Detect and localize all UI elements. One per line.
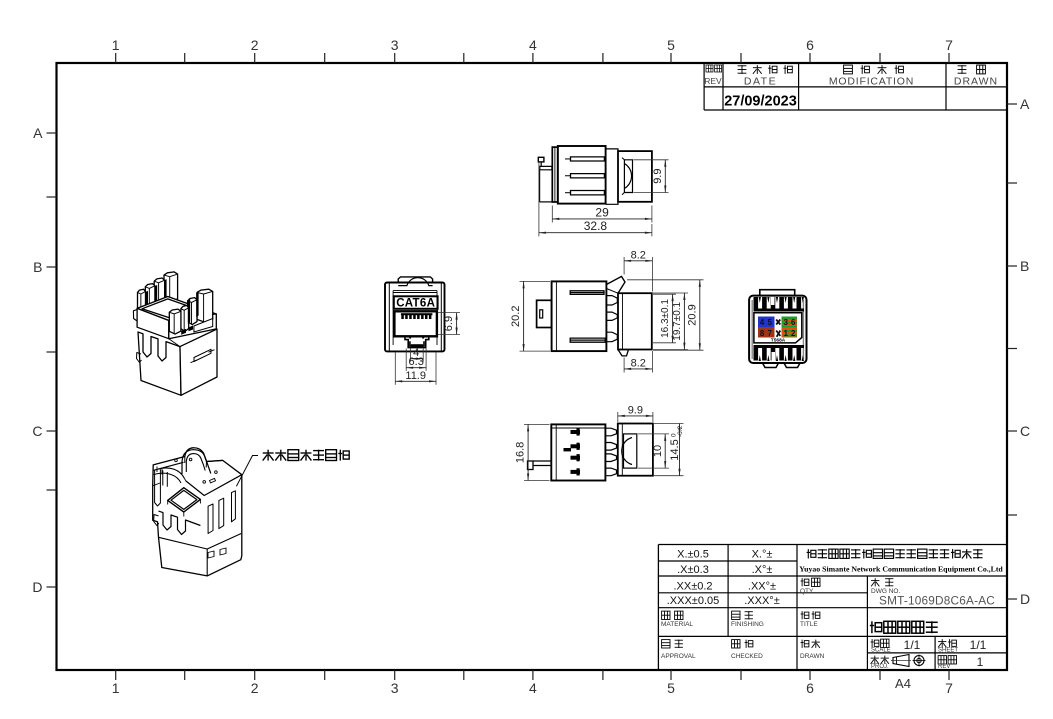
svg-text:1: 1 (784, 329, 789, 338)
svg-text:1/1: 1/1 (904, 638, 921, 652)
svg-text:2: 2 (791, 329, 796, 338)
svg-text:DATE: DATE (744, 76, 777, 88)
svg-text:QTY: QTY (800, 588, 814, 595)
svg-text:3: 3 (391, 680, 399, 696)
svg-text:SHEET: SHEET (938, 648, 958, 654)
svg-text:32.8: 32.8 (584, 219, 608, 233)
svg-text:10: 10 (652, 445, 664, 457)
svg-text:.XXX°±: .XXX°± (744, 595, 780, 607)
svg-text:4: 4 (529, 37, 537, 53)
svg-text:.XX°±: .XX°± (748, 580, 776, 592)
svg-text:DRAWN: DRAWN (800, 653, 825, 660)
svg-text:6: 6 (806, 680, 814, 696)
svg-text:6: 6 (806, 37, 814, 53)
svg-text:REV: REV (938, 664, 950, 670)
svg-text:8.2: 8.2 (631, 249, 646, 261)
svg-text:8.2: 8.2 (631, 357, 646, 369)
svg-text:20.2: 20.2 (510, 306, 522, 327)
svg-text:X.±0.5: X.±0.5 (677, 549, 709, 561)
svg-text:5: 5 (667, 37, 675, 53)
svg-text:APPROVAL: APPROVAL (661, 653, 696, 660)
svg-text:1/1: 1/1 (970, 638, 987, 652)
svg-text:FINISHING: FINISHING (731, 621, 764, 628)
svg-text:7: 7 (768, 329, 772, 338)
svg-text:-0.2: -0.2 (677, 425, 684, 437)
svg-text:CHECKED: CHECKED (731, 653, 763, 660)
svg-text:D: D (32, 579, 42, 595)
svg-text:TITLE: TITLE (800, 621, 818, 628)
svg-text:4: 4 (529, 680, 537, 696)
svg-text:14.5: 14.5 (669, 439, 681, 460)
svg-text:19.7±0.1: 19.7±0.1 (672, 301, 683, 340)
svg-text:A: A (1020, 96, 1030, 112)
svg-text:3: 3 (784, 318, 789, 327)
svg-text:11.9: 11.9 (405, 370, 426, 382)
svg-text:DRAWN: DRAWN (954, 76, 998, 88)
svg-text:Yuyao Simante Network Communic: Yuyao Simante Network Communication Equi… (799, 565, 1003, 574)
svg-text:1: 1 (977, 655, 984, 669)
svg-text:A: A (33, 125, 43, 141)
svg-text:6: 6 (791, 318, 796, 327)
svg-text:C: C (32, 423, 42, 439)
svg-text:PROJ.: PROJ. (871, 664, 889, 670)
svg-text:.XXX±0.05: .XXX±0.05 (667, 595, 720, 607)
svg-text:B: B (33, 259, 42, 275)
svg-text:T568A: T568A (771, 337, 786, 343)
svg-text:7: 7 (945, 680, 953, 696)
svg-text:8: 8 (760, 329, 765, 338)
svg-text:16.3±0.1: 16.3±0.1 (660, 299, 671, 338)
svg-text:4: 4 (760, 318, 765, 327)
svg-text:.X°±: .X°± (752, 564, 773, 576)
svg-text:SCALE: SCALE (871, 648, 891, 654)
svg-text:9.9: 9.9 (628, 404, 643, 416)
svg-text:16.8: 16.8 (515, 442, 527, 463)
svg-text:MODIFICATION: MODIFICATION (829, 76, 914, 88)
svg-text:5: 5 (667, 680, 675, 696)
svg-text:1: 1 (112, 37, 120, 53)
svg-text:C: C (1020, 423, 1030, 439)
svg-text:SMT-1069D8C6A-AC: SMT-1069D8C6A-AC (879, 594, 995, 608)
svg-text:.X±0.3: .X±0.3 (677, 564, 709, 576)
svg-text:2: 2 (251, 680, 259, 696)
svg-text:9.9: 9.9 (652, 169, 664, 184)
svg-text:6.3: 6.3 (409, 356, 424, 368)
svg-text:X.°±: X.°± (752, 549, 773, 561)
svg-text:2: 2 (251, 37, 259, 53)
svg-text:6.9: 6.9 (443, 316, 455, 331)
svg-text:27/09/2023: 27/09/2023 (724, 94, 797, 110)
svg-text:B: B (1020, 258, 1029, 274)
svg-text:.XX±0.2: .XX±0.2 (673, 580, 712, 592)
svg-text:A4: A4 (895, 676, 911, 691)
svg-text:1: 1 (112, 680, 120, 696)
svg-text:5: 5 (768, 318, 773, 327)
svg-text:7: 7 (945, 37, 953, 53)
svg-text:29: 29 (595, 205, 609, 219)
svg-text:D: D (1020, 591, 1030, 607)
svg-text:20.9: 20.9 (686, 304, 698, 325)
svg-text:REV: REV (704, 76, 722, 86)
svg-text:CAT6A: CAT6A (396, 298, 435, 310)
svg-text:3: 3 (391, 37, 399, 53)
svg-text:MATERIAL: MATERIAL (661, 621, 693, 628)
